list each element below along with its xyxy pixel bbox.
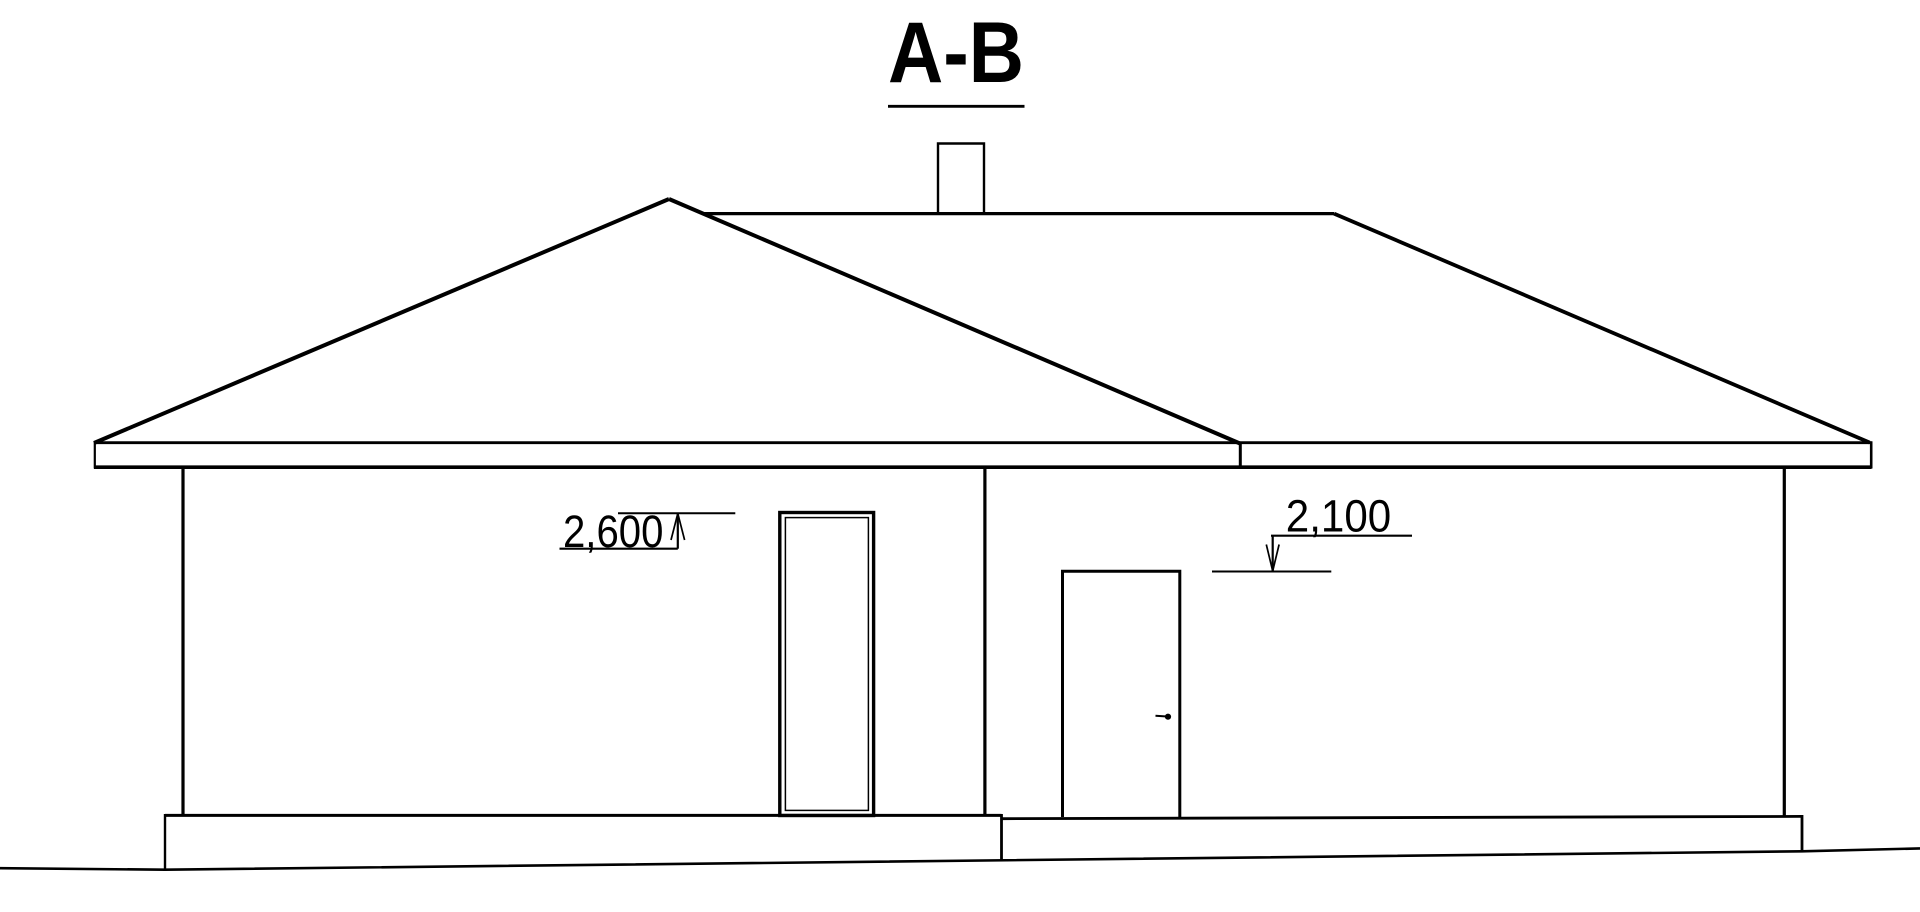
svg-text:2,100: 2,100 <box>1286 490 1391 541</box>
svg-text:A-B: A-B <box>888 5 1024 101</box>
